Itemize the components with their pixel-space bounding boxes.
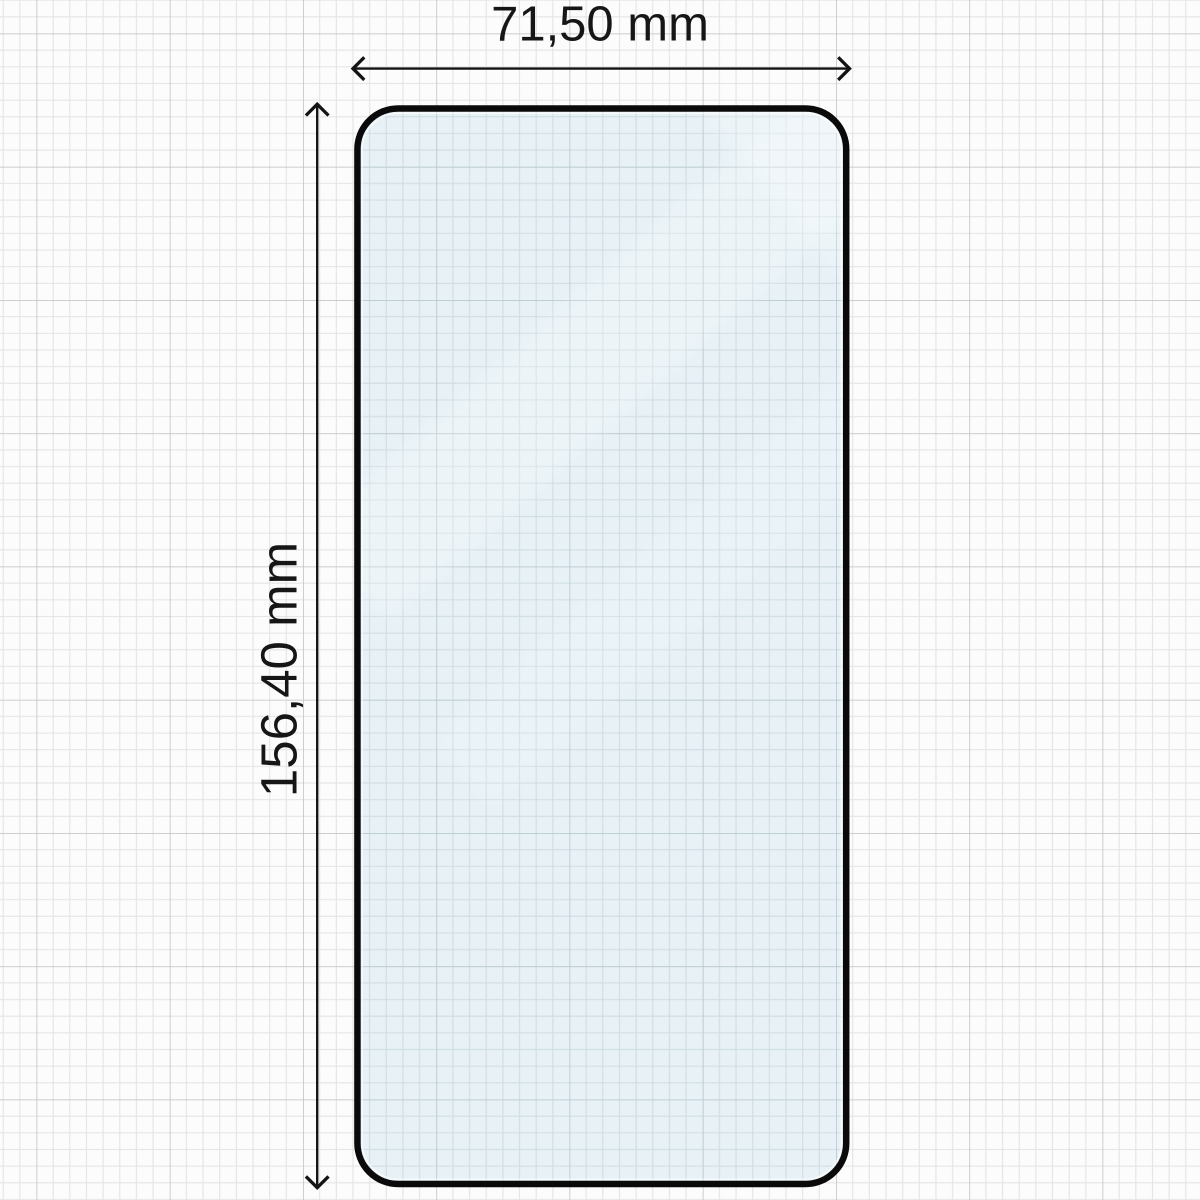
svg-text:156,40 mm: 156,40 mm — [251, 542, 308, 797]
svg-text:71,50 mm: 71,50 mm — [491, 0, 709, 52]
